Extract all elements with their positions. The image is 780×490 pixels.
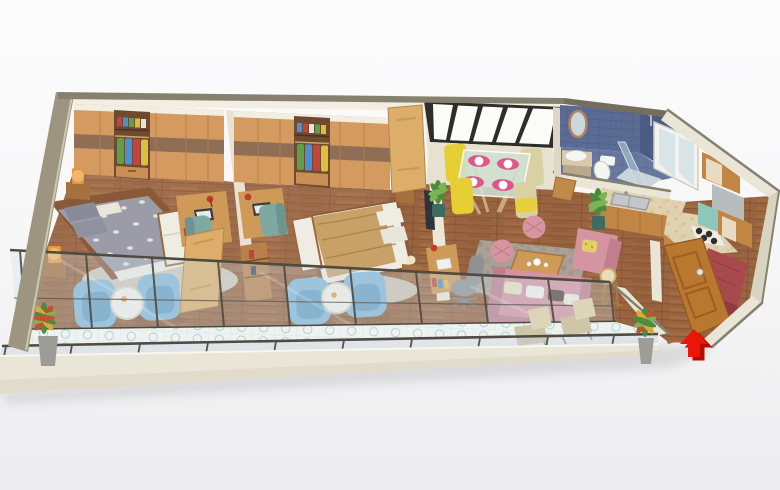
laptop (436, 258, 452, 270)
yellow-cushion (581, 239, 598, 253)
cup (544, 263, 548, 267)
cup (527, 262, 531, 266)
faucet (624, 191, 628, 195)
wardrobe-middle (234, 111, 390, 190)
wardrobe-left (74, 104, 224, 182)
bathroom-door-open (552, 177, 576, 201)
drawer-handle (128, 170, 136, 172)
teapot (533, 258, 540, 265)
floorplan-stage (0, 0, 780, 490)
plant-pot (38, 336, 58, 366)
pouf (491, 240, 514, 263)
book (249, 250, 254, 259)
ball-lamp (407, 256, 416, 265)
red-desk-lamp (245, 194, 252, 201)
door-handle (697, 269, 703, 275)
entry-jamb-wall (650, 240, 662, 302)
red-desk-lamp (431, 245, 438, 252)
dining-chair-yellow (450, 177, 474, 214)
desk-middle-bedroom (238, 188, 288, 239)
mirror (570, 111, 587, 137)
pouf (523, 216, 546, 239)
apartment-3d-floorplan (0, 0, 780, 490)
